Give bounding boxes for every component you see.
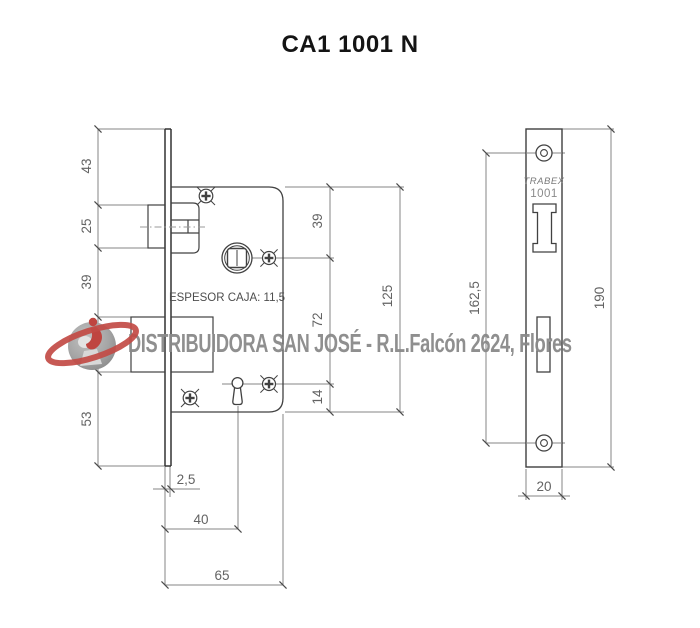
dim-190: 190 [592, 287, 607, 310]
dim-20: 20 [536, 479, 551, 494]
logo-figure-head [89, 318, 97, 326]
screw-icon [260, 375, 277, 392]
lock-spec-sheet: CA1 1001 N [0, 0, 700, 628]
screw-icon [197, 187, 215, 205]
saturn-ring-logo-icon [44, 292, 196, 400]
model-label: 1001 [530, 188, 558, 200]
company-logo [44, 292, 196, 400]
screw-icon [536, 435, 552, 451]
keyhole [232, 378, 243, 405]
dim-125: 125 [380, 285, 395, 308]
dim-53: 53 [79, 411, 94, 426]
latch-bolt [140, 203, 207, 253]
brand-label: TRABEX [523, 176, 564, 187]
screw-icon [536, 145, 552, 161]
spindle-hub [222, 243, 252, 273]
dim-14: 14 [310, 389, 325, 405]
dim-72: 72 [310, 312, 325, 327]
screw-icon [260, 249, 277, 266]
dim-162-5: 162,5 [467, 281, 482, 315]
dim-39-left: 39 [79, 274, 94, 289]
dim-25: 25 [79, 218, 94, 233]
dim-43: 43 [79, 158, 94, 173]
dim-2-5: 2,5 [177, 472, 196, 487]
front-view: TRABEX 1001 162,5 190 20 [467, 125, 615, 500]
dim-65: 65 [214, 568, 229, 583]
dim-39-right: 39 [310, 213, 325, 228]
dim-40: 40 [193, 512, 208, 527]
